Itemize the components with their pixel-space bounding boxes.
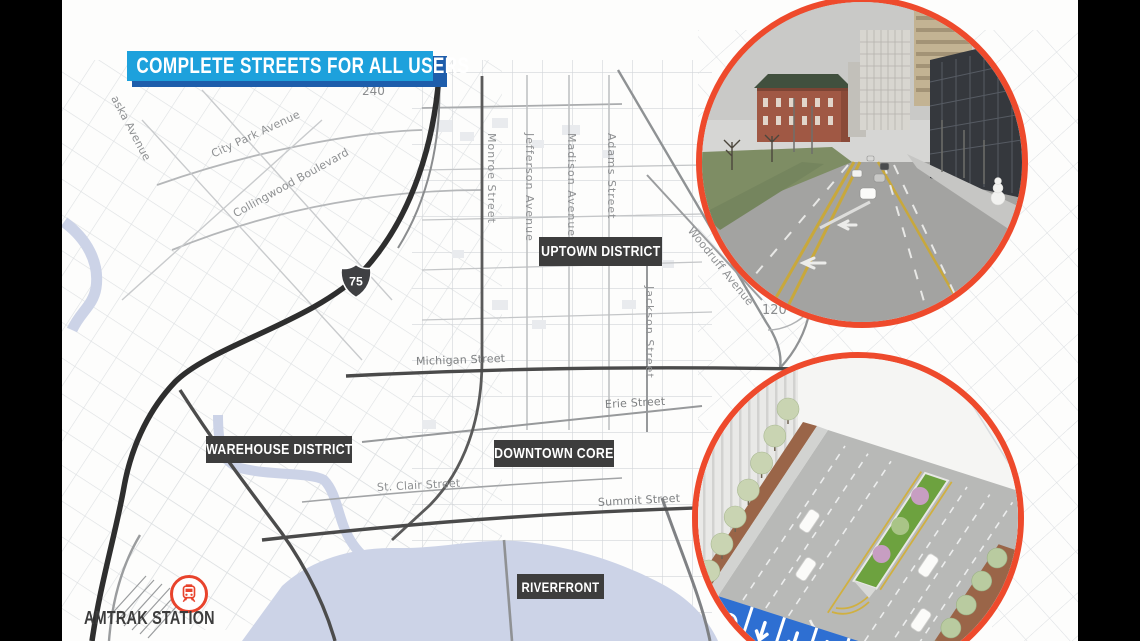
street-rendering-scene <box>698 358 1018 641</box>
infographic: COMPLETE STREETS FOR ALL USERS UPTOWN DI… <box>0 0 1140 641</box>
district-label-uptown: UPTOWN DISTRICT <box>539 237 662 266</box>
title-banner: COMPLETE STREETS FOR ALL USERS <box>127 51 433 81</box>
route-75-number: 75 <box>349 275 363 289</box>
district-label-riverfront: RIVERFRONT <box>517 574 604 599</box>
district-label-warehouse: WAREHOUSE DISTRICT <box>206 436 352 463</box>
interstate-shield-icon: 75 <box>339 262 373 300</box>
existing-street-photo-inset <box>696 0 1028 328</box>
street-label-monroe-street: Monroe Street <box>485 133 498 224</box>
amtrak-station-label: AMTRAK STATION <box>84 608 215 629</box>
street-label-jefferson-avenue: Jefferson Avenue <box>523 133 536 242</box>
page-title: COMPLETE STREETS FOR ALL USERS <box>127 53 469 79</box>
district-label-downtown-core: DOWNTOWN CORE <box>494 440 614 467</box>
train-icon <box>178 583 200 605</box>
street-label-madison-avenue: Madison Avenue <box>565 133 578 237</box>
street-label-adams-street: Adams Street <box>605 133 618 219</box>
map-canvas: COMPLETE STREETS FOR ALL USERS UPTOWN DI… <box>62 0 1078 641</box>
street-label-jackson-street: Jackson Street <box>643 286 656 379</box>
street-photo-scene <box>702 2 1022 322</box>
